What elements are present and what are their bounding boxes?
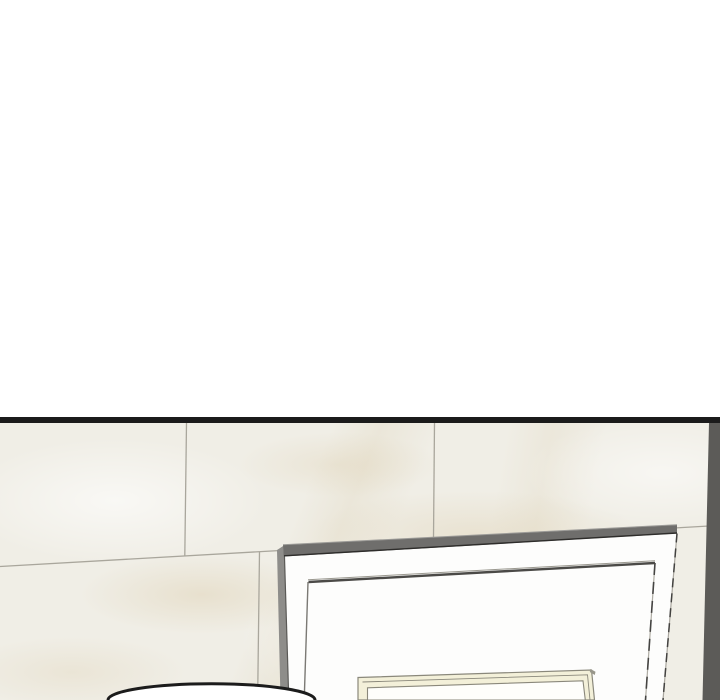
tile-seam-vertical-upper-right (434, 423, 435, 538)
wall-corner-shadow (703, 423, 720, 700)
bathroom-scene (0, 0, 720, 700)
tile-seam-vertical-lower (258, 552, 260, 687)
bathroom-cabinet (277, 525, 677, 700)
webtoon-strip (0, 0, 720, 700)
tile-seam-vertical-upper-left (185, 423, 187, 556)
